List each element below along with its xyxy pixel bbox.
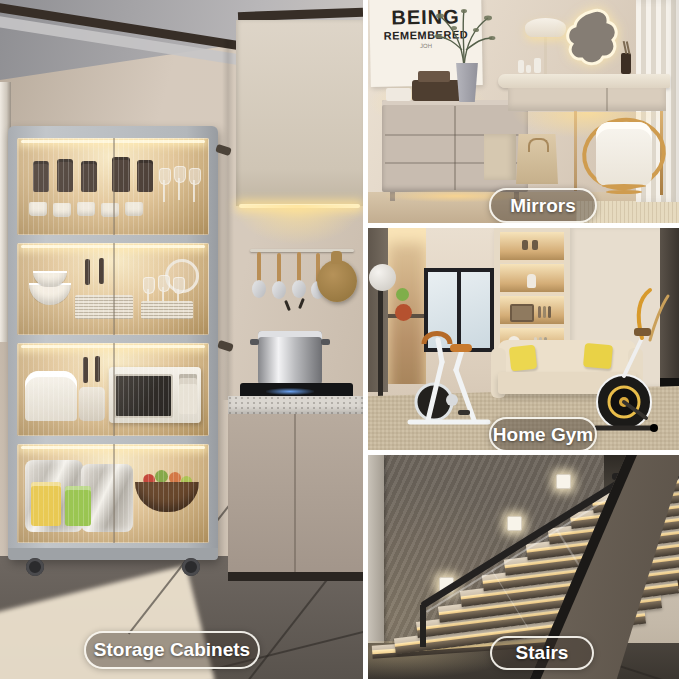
- reed-diffuser: [621, 53, 631, 74]
- panel-storage-cabinets: Storage Cabinets: [0, 0, 363, 679]
- exercise-ball-white: [369, 264, 396, 291]
- elliptical-trainer: [584, 286, 678, 446]
- cosmetic-bottle: [534, 58, 541, 73]
- cabinet-kickplate: [228, 572, 363, 581]
- label-stairs: Stairs: [490, 636, 594, 670]
- desk-leg: [574, 111, 577, 191]
- panel-stairs: Stairs: [368, 455, 679, 679]
- upper-cabinet: [236, 20, 363, 206]
- label-home-gym: Home Gym: [489, 417, 597, 450]
- cabinet-tier-dishes: [17, 243, 209, 335]
- shelf-cell: [500, 296, 564, 324]
- plant-branches: [426, 6, 498, 70]
- label-storage-cabinets: Storage Cabinets: [84, 631, 260, 669]
- cutting-board: [317, 260, 357, 302]
- countertop: [228, 396, 363, 414]
- table-lamp-shade: [525, 18, 566, 37]
- led-vanity-mirror: [564, 8, 620, 74]
- table-lamp-stem: [544, 34, 547, 78]
- stool-base-ring: [606, 190, 642, 194]
- shelf-cell: [500, 232, 564, 260]
- lower-cabinet: [228, 414, 363, 576]
- shelf-decor: [522, 240, 528, 250]
- shopping-bag: [516, 134, 558, 184]
- figurine: [527, 274, 536, 288]
- stool-base-ring: [602, 184, 646, 188]
- cabinet-tier-appliances: [17, 343, 209, 436]
- burner-flame: [266, 388, 314, 395]
- product-collage: Storage Cabinets BEING REMEMBERED JOH: [0, 0, 679, 679]
- panel-mirrors: BEING REMEMBERED JOH: [368, 0, 679, 223]
- cosmetic-bottle: [518, 60, 524, 73]
- picture-frame: [510, 304, 534, 322]
- tissue-box: [386, 88, 411, 101]
- storage-box-small: [418, 71, 450, 82]
- shelf-cell: [500, 264, 564, 292]
- yellow-pillow: [509, 345, 537, 372]
- square-wall-light: [556, 474, 571, 489]
- cabinet-tier-snacks: [17, 444, 209, 543]
- square-wall-light: [507, 516, 522, 531]
- caster-wheel: [182, 558, 200, 576]
- vanity-desk-top: [498, 74, 670, 88]
- under-cabinet-glow: [232, 205, 363, 245]
- cosmetic-jar: [526, 65, 531, 73]
- vanity-stool: [596, 122, 652, 186]
- panel-home-gym: Home Gym: [368, 228, 679, 450]
- stair-left-pillar: [368, 455, 384, 655]
- storage-cabinet: [8, 126, 218, 560]
- caster-wheel: [26, 558, 44, 576]
- vanity-desk-drawers: [508, 88, 666, 111]
- cooking-pot: [258, 331, 322, 387]
- books: [538, 306, 541, 318]
- shelf-decor: [532, 240, 538, 250]
- cabinet-tier-glassware: [17, 138, 209, 235]
- storage-box: [412, 80, 464, 101]
- label-mirrors: Mirrors: [489, 188, 597, 223]
- exercise-bike: [402, 292, 496, 430]
- ball-rack: [378, 286, 383, 408]
- gift-box: [484, 134, 516, 180]
- railing-post: [420, 605, 426, 647]
